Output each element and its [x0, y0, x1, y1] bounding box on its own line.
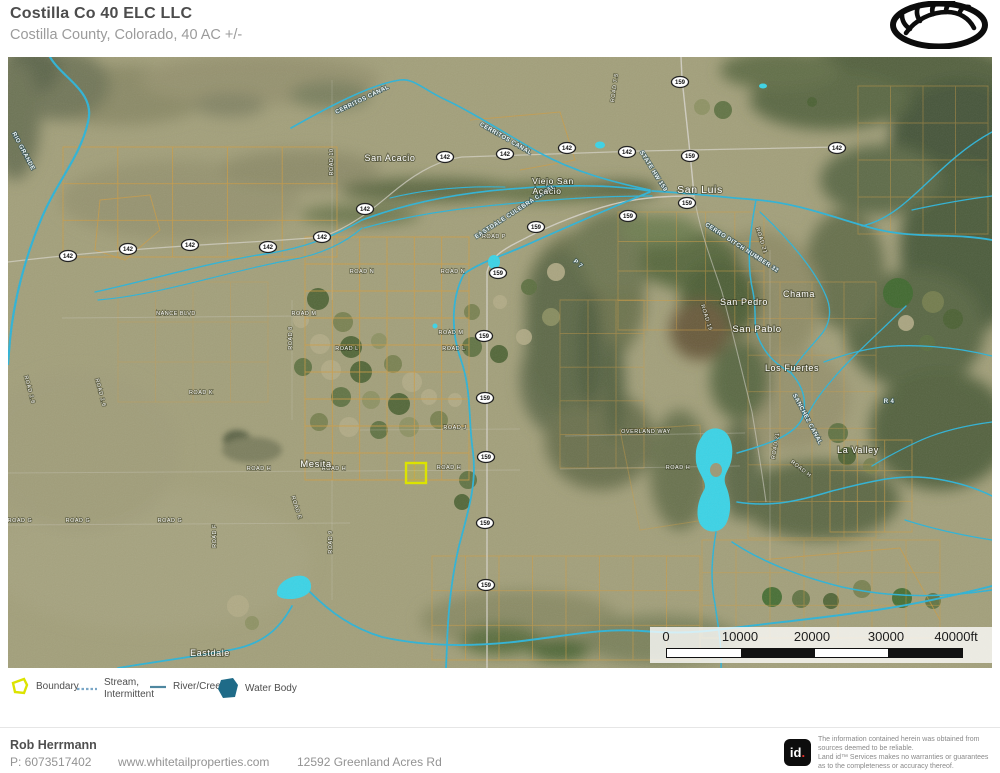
svg-text:159: 159 [493, 271, 504, 277]
footer: Rob Herrmann P: 6073517402 www.whitetail… [0, 727, 1000, 773]
agent-name: Rob Herrmann [10, 738, 97, 752]
agent-phone: P: 6073517402 [10, 755, 91, 769]
road-label: NANCE BLVD [156, 311, 196, 317]
highway-shield: 142 [559, 143, 576, 154]
highway-shield: 159 [672, 77, 689, 88]
boundary-icon [10, 677, 30, 697]
waterway-label: R 4 [884, 399, 895, 405]
highway-shield: 159 [478, 452, 495, 463]
town-label: Eastdale [190, 648, 230, 658]
town-label: Viejo San [532, 176, 574, 186]
stream-intermittent-icon [76, 679, 98, 699]
highway-shield: 159 [620, 211, 637, 222]
road-label: ROAD H [437, 465, 461, 471]
map-report-page: Costilla Co 40 ELC LLC Costilla County, … [0, 0, 1000, 773]
highway-shield: 142 [260, 242, 277, 253]
legend-label: Water Body [245, 683, 297, 695]
road-label: ROAD G [158, 518, 183, 524]
svg-text:142: 142 [500, 152, 511, 158]
town-label: La Valley [837, 445, 879, 455]
highway-shield: 142 [314, 232, 331, 243]
road-label: ROAD L [442, 346, 465, 352]
highway-shield: 142 [497, 149, 514, 160]
svg-text:142: 142 [185, 243, 196, 249]
town-label: San Acacio [364, 153, 415, 163]
road-label: ROAD H [247, 466, 271, 472]
legend-item-water-body: Water Body [216, 677, 297, 700]
svg-text:142: 142 [832, 146, 843, 152]
svg-text:142: 142 [317, 235, 328, 241]
page-subtitle: Costilla County, Colorado, 40 AC +/- [10, 27, 242, 43]
highway-shield: 159 [476, 331, 493, 342]
town-label: Los Fuertes [765, 363, 819, 373]
property-boundary [406, 463, 426, 483]
highway-shield: 159 [528, 222, 545, 233]
scale-label: 10000 [722, 629, 758, 644]
scale-label: 40000ft [934, 629, 977, 644]
road-label: ROAD N [441, 269, 465, 275]
svg-text:159: 159 [480, 521, 491, 527]
svg-text:159: 159 [531, 225, 542, 231]
road-label: ROAD G [8, 518, 32, 524]
svg-text:159: 159 [682, 201, 693, 207]
highway-shield: 159 [477, 393, 494, 404]
map-canvas: RIO GRANDECERRITOS CANALCERRITOS CANALEA… [8, 57, 992, 668]
legend-label: Stream,Intermittent [104, 677, 154, 700]
svg-text:159: 159 [479, 334, 490, 340]
land-id-logo: id. [784, 739, 811, 766]
town-label: Mesita [300, 459, 332, 470]
svg-text:159: 159 [481, 455, 492, 461]
svg-text:142: 142 [63, 254, 74, 260]
road-label: ROAD 9 [328, 530, 334, 553]
road-label: ROAD M [439, 330, 464, 336]
town-label: Acacio [532, 186, 561, 196]
website-link: www.whitetailproperties.com [118, 755, 269, 769]
road-label: ROAD 8 [288, 326, 294, 349]
road-label: ROAD M [292, 311, 317, 317]
road-label: ROAD 10 [329, 148, 335, 175]
highway-shield: 159 [490, 268, 507, 279]
svg-text:159: 159 [675, 80, 686, 86]
water-body-icon [216, 677, 239, 700]
whitetail-antler-logo-icon [890, 1, 988, 49]
svg-text:142: 142 [263, 245, 274, 251]
road-label: ROAD L [335, 346, 358, 352]
svg-text:142: 142 [622, 150, 633, 156]
property-address: 12592 Greenland Acres Rd [297, 755, 442, 769]
highway-shield: 142 [829, 143, 846, 154]
highway-shield: 142 [182, 240, 199, 251]
town-label: San Pedro [720, 297, 768, 307]
highway-shield: 142 [619, 147, 636, 158]
highway-shield: 159 [682, 151, 699, 162]
scale-track [666, 648, 963, 658]
highway-shield: 159 [477, 518, 494, 529]
road-label: ROAD H [666, 465, 690, 471]
svg-text:142: 142 [360, 207, 371, 213]
svg-text:159: 159 [685, 154, 696, 160]
scale-label: 30000 [868, 629, 904, 644]
highway-shield: 142 [357, 204, 374, 215]
road-label: ROAD N [350, 269, 374, 275]
highway-shield: 159 [679, 198, 696, 209]
legend-label: Boundary [36, 681, 79, 693]
town-label: San Luis [677, 184, 723, 196]
svg-text:159: 159 [480, 396, 491, 402]
scale-label: 0 [662, 629, 669, 644]
legend-item-river: River/Creek [149, 677, 226, 697]
scale-bar: 010000200003000040000ft [650, 627, 997, 663]
highway-shield: 142 [60, 251, 77, 262]
town-label: San Pablo [732, 324, 781, 335]
svg-text:142: 142 [562, 146, 573, 152]
highway-shield: 159 [478, 580, 495, 591]
svg-text:159: 159 [481, 583, 492, 589]
highway-shield: 142 [437, 152, 454, 163]
page-title: Costilla Co 40 ELC LLC [10, 5, 192, 23]
legend-item-stream: Stream,Intermittent [76, 677, 154, 700]
road-label: ROAD F [212, 524, 218, 548]
svg-text:142: 142 [123, 247, 134, 253]
river-creek-icon [149, 677, 167, 697]
scale-label: 20000 [794, 629, 830, 644]
road-label: ROAD K [189, 390, 213, 396]
map-legend: Boundary Stream,Intermittent River/Creek… [0, 668, 1000, 727]
road-label: ROAD P [482, 234, 506, 240]
highway-shield: 142 [120, 244, 137, 255]
svg-text:159: 159 [623, 214, 634, 220]
svg-text:142: 142 [440, 155, 451, 161]
legend-item-boundary: Boundary [10, 677, 79, 697]
road-label: ROAD G [66, 518, 91, 524]
road-label: ROAD J [443, 425, 466, 431]
town-label: Chama [783, 289, 815, 299]
road-label: OVERLAND WAY [621, 429, 671, 435]
disclaimer-text: The information contained herein was obt… [818, 735, 996, 771]
